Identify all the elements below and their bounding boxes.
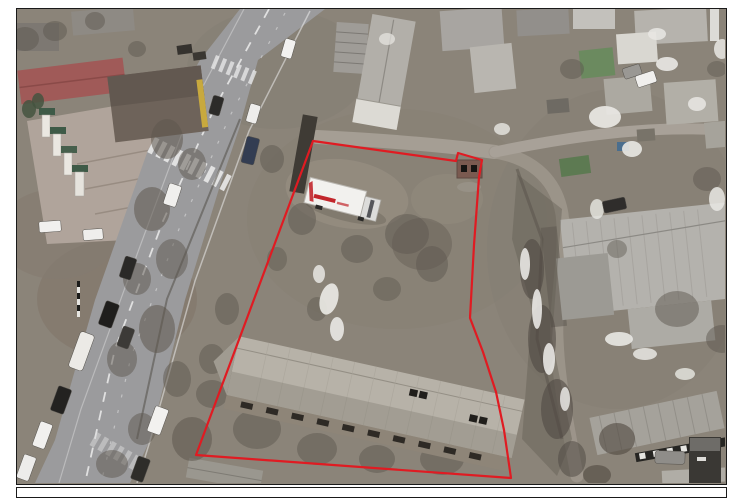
caption-bar [16, 487, 727, 498]
striped-pole [77, 281, 80, 317]
document-page [0, 0, 749, 500]
car [83, 228, 104, 240]
aerial-photo [17, 9, 725, 483]
car [39, 220, 62, 233]
car [655, 450, 685, 464]
truck-bottom-right [689, 437, 721, 483]
photo-frame [16, 8, 727, 485]
